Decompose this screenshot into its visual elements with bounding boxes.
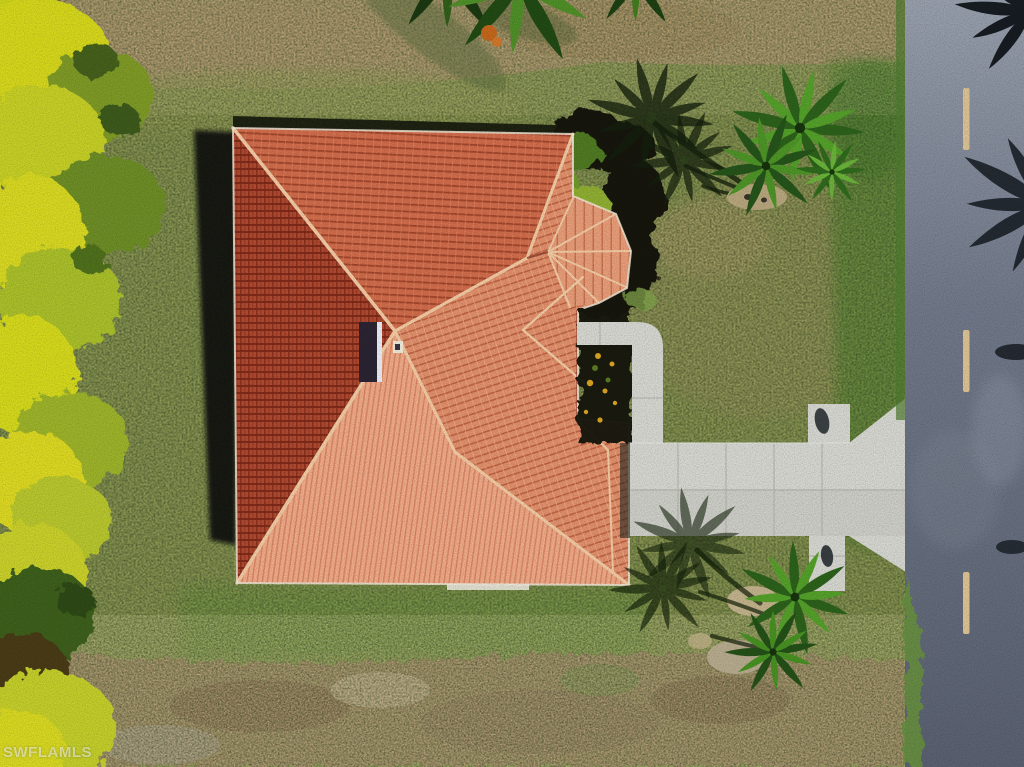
aerial-photo: SWFLAMLS xyxy=(0,0,1024,767)
aerial-photo-canvas xyxy=(0,0,1024,767)
mls-watermark: SWFLAMLS xyxy=(3,744,92,761)
photo-grain xyxy=(0,0,1024,767)
